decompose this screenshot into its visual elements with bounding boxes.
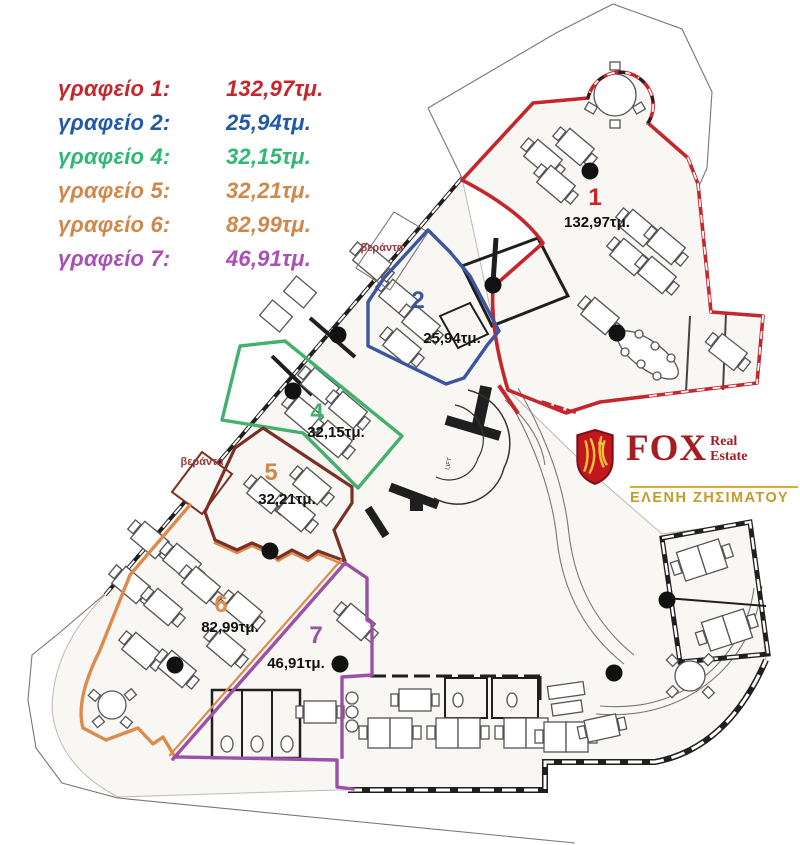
legend-office-4-label: γραφείο 4:	[58, 144, 226, 170]
legend: γραφείο 1: 132,97τμ. γραφείο 2: 25,94τμ.…	[58, 76, 358, 280]
office-5-area: 32,21τμ.	[258, 491, 316, 508]
legend-office-5-label: γραφείο 5:	[58, 178, 226, 204]
fox-logo: FOX Real Estate ΕΛΕΝΗ ΖΗΣΙΜΑΤΟΥ	[568, 429, 798, 506]
legend-office-7-label: γραφείο 7:	[58, 246, 226, 272]
office-1-area: 132,97τμ.	[564, 214, 630, 231]
legend-office-5-value: 32,21τμ.	[226, 178, 311, 204]
gold-divider	[630, 486, 798, 488]
legend-office-7-value: 46,91τμ.	[226, 246, 311, 272]
legend-row-office-5: γραφείο 5: 32,21τμ.	[58, 178, 358, 212]
legend-office-2-label: γραφείο 2:	[58, 110, 226, 136]
fox-wordmark: FOX	[626, 429, 707, 469]
veranda-label-1: βεράντα	[361, 242, 404, 254]
real-label: Real	[710, 434, 747, 449]
office-7-area: 46,91τμ.	[267, 655, 325, 672]
agent-name: ΕΛΕΝΗ ΖΗΣΙΜΑΤΟΥ	[630, 490, 798, 506]
office-6-number: 6	[214, 591, 227, 618]
legend-office-4-value: 32,15τμ.	[226, 144, 311, 170]
legend-row-office-4: γραφείο 4: 32,15τμ.	[58, 144, 358, 178]
office-2-area: 25,94τμ.	[423, 330, 481, 347]
legend-office-6-label: γραφείο 6:	[58, 212, 226, 238]
legend-office-2-value: 25,94τμ.	[226, 110, 311, 136]
floorplan-page: LIFT	[0, 0, 800, 845]
office-2-number: 2	[411, 287, 424, 314]
office-7-number: 7	[309, 622, 322, 649]
office-4-area: 32,15τμ.	[307, 424, 365, 441]
office-6-area: 82,99τμ.	[201, 619, 259, 636]
legend-row-office-6: γραφείο 6: 82,99τμ.	[58, 212, 358, 246]
estate-label: Estate	[710, 449, 747, 464]
fox-shield-icon	[568, 429, 622, 485]
legend-row-office-7: γραφείο 7: 46,91τμ.	[58, 246, 358, 280]
desk	[359, 718, 421, 748]
legend-office-6-value: 82,99τμ.	[226, 212, 311, 238]
office-1-number: 1	[588, 184, 601, 211]
legend-office-1-value: 132,97τμ.	[226, 76, 323, 102]
real-estate-label: Real Estate	[710, 434, 747, 464]
office-4-number: 4	[310, 399, 324, 426]
legend-office-1-label: γραφείο 1:	[58, 76, 226, 102]
legend-row-office-1: γραφείο 1: 132,97τμ.	[58, 76, 358, 110]
desk	[427, 718, 489, 748]
veranda-label-2: βεράντα	[181, 456, 224, 468]
legend-row-office-2: γραφείο 2: 25,94τμ.	[58, 110, 358, 144]
office-5-number: 5	[264, 459, 277, 486]
